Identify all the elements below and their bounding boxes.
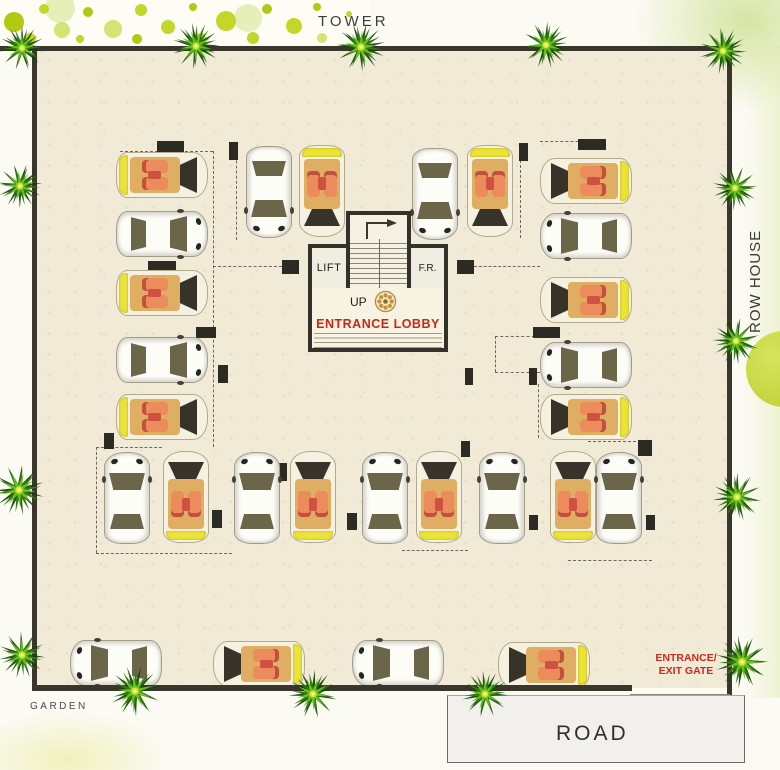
car-white (540, 342, 632, 388)
column-pillar (461, 441, 470, 457)
palm-tree-icon (288, 669, 338, 719)
palm-tree-icon (0, 163, 43, 209)
column-pillar (533, 327, 560, 338)
car-white (116, 337, 208, 383)
decor-dot (132, 34, 142, 44)
decor-dot (317, 33, 327, 43)
parking-bay-line (213, 266, 282, 267)
palm-tree-icon (712, 472, 762, 522)
palm-tree-icon (336, 22, 386, 72)
column-pillar (157, 141, 184, 152)
decor-dot (83, 7, 93, 17)
car-white (479, 452, 525, 544)
boundary-wall-left (32, 46, 37, 691)
staircase (346, 211, 411, 292)
entrance-lobby-label: ENTRANCE LOBBY (312, 317, 444, 331)
lobby-steps (314, 333, 442, 348)
decor-dot (286, 18, 302, 34)
column-pillar (229, 142, 238, 160)
palm-tree-icon (0, 631, 46, 679)
car-tan (550, 451, 596, 543)
column-pillar (347, 513, 357, 530)
palm-tree-icon (712, 165, 758, 211)
entrance-lobby: UP ENTRANCE LOBBY (308, 288, 448, 352)
car-tan (498, 642, 590, 688)
garden-area (0, 712, 166, 770)
column-pillar (529, 515, 538, 530)
car-white (540, 213, 632, 259)
fr-label: F.R. (419, 263, 437, 274)
palm-tree-icon (712, 317, 760, 365)
column-pillar (104, 433, 114, 449)
palm-tree-icon (699, 27, 747, 75)
column-pillar (457, 260, 474, 274)
car-white (234, 452, 280, 544)
column-pillar (519, 143, 528, 161)
car-tan (290, 451, 336, 543)
up-arrow-icon (356, 218, 402, 240)
palm-tree-icon (522, 21, 570, 69)
column-pillar (578, 139, 606, 150)
road-label: ROAD (556, 722, 629, 746)
parking-bay-line (520, 160, 521, 238)
decor-dot (189, 3, 197, 11)
lift-label: LIFT (317, 262, 342, 274)
column-pillar (212, 510, 222, 528)
decor-dot (135, 4, 147, 16)
column-pillar (465, 368, 473, 385)
palm-tree-icon (109, 665, 161, 717)
parking-bay-line (213, 151, 214, 447)
car-white (246, 146, 292, 238)
lift-room: LIFT (308, 244, 350, 292)
car-tan (416, 451, 462, 543)
boundary-wall-right (727, 49, 732, 697)
column-pillar (529, 368, 537, 385)
car-white (412, 148, 458, 240)
car-tan (299, 145, 345, 237)
up-label: UP (350, 295, 367, 309)
car-white (116, 211, 208, 257)
car-tan (540, 158, 632, 204)
car-tan (116, 152, 208, 198)
stair-divider (379, 239, 380, 288)
decor-dot (76, 35, 84, 43)
palm-tree-icon (172, 22, 220, 70)
car-white (596, 452, 642, 544)
car-tan (467, 145, 513, 237)
garden-label: GARDEN (30, 701, 88, 712)
parking-bay-line (402, 550, 468, 551)
column-pillar (646, 515, 655, 530)
car-tan (540, 394, 632, 440)
decor-dot (247, 32, 259, 44)
rangoli-motif-icon (374, 290, 397, 313)
parking-bay-line (96, 553, 232, 554)
parking-floor-plan: LIFT F.R. UP ENTRANCE LOBBY ROAD TOWER R (0, 0, 780, 770)
decor-dot (262, 4, 272, 14)
lobby-top-row: UP (350, 290, 397, 313)
car-tan (540, 277, 632, 323)
palm-tree-icon (715, 635, 769, 689)
parking-bay-line (474, 266, 540, 267)
row-house-label: ROW HOUSE (747, 213, 764, 333)
column-pillar (218, 365, 228, 383)
car-tan (163, 451, 209, 543)
parking-bay-line (568, 560, 652, 561)
car-tan (116, 394, 208, 440)
column-pillar (282, 260, 299, 274)
decor-dot (313, 3, 321, 11)
decor-dot (39, 4, 49, 14)
decor-dot (54, 22, 70, 38)
parking-bay-line (495, 336, 496, 372)
fire-room: F.R. (407, 244, 448, 292)
palm-tree-icon (0, 464, 45, 516)
parking-bay-line (96, 447, 97, 553)
parking-bay-line (538, 384, 539, 438)
palm-tree-icon (0, 25, 45, 71)
palm-tree-icon (461, 670, 509, 718)
car-white (104, 452, 150, 544)
decor-dot (45, 0, 75, 23)
decor-dot (104, 20, 122, 38)
decor-dot (234, 4, 262, 32)
car-white (352, 640, 444, 686)
car-white (362, 452, 408, 544)
car-tan (116, 270, 208, 316)
